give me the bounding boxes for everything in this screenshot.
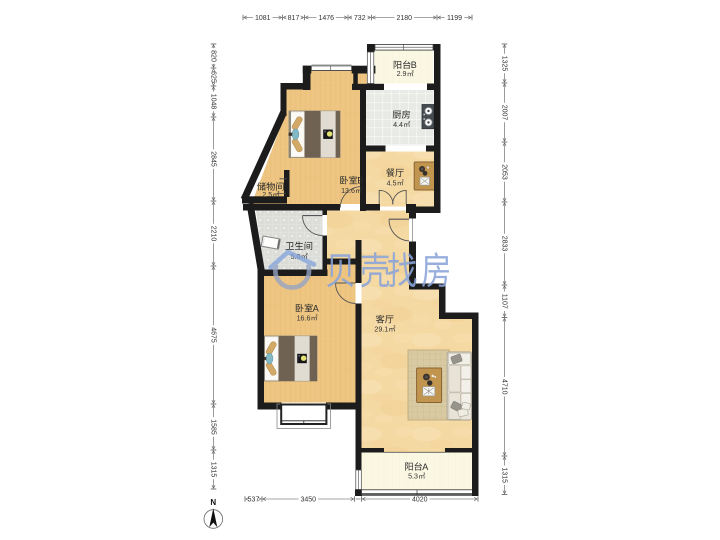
svg-text:1476: 1476 xyxy=(318,15,334,22)
svg-text:A: A xyxy=(422,462,428,472)
svg-text:2007: 2007 xyxy=(500,105,507,121)
svg-text:4675: 4675 xyxy=(209,327,216,343)
svg-text:2833: 2833 xyxy=(500,236,507,252)
svg-text:4.4: 4.4 xyxy=(393,121,403,129)
svg-text:1048: 1048 xyxy=(209,94,216,110)
svg-text:4020: 4020 xyxy=(412,496,428,503)
svg-text:3450: 3450 xyxy=(300,496,316,503)
svg-text:29.1: 29.1 xyxy=(374,326,388,334)
svg-text:1315: 1315 xyxy=(209,462,216,478)
svg-text:1325: 1325 xyxy=(500,56,507,72)
svg-text:1585: 1585 xyxy=(209,419,216,435)
svg-text:N: N xyxy=(210,498,216,507)
svg-text:B: B xyxy=(357,176,363,186)
svg-text:B: B xyxy=(411,60,417,70)
svg-text:625: 625 xyxy=(209,71,216,83)
svg-text:2.5: 2.5 xyxy=(262,191,272,199)
svg-text:2053: 2053 xyxy=(500,164,507,180)
svg-text:4710: 4710 xyxy=(500,379,507,395)
svg-text:1107: 1107 xyxy=(500,294,507,309)
svg-text:2210: 2210 xyxy=(209,226,216,242)
svg-text:2.9: 2.9 xyxy=(397,70,407,78)
svg-text:13.6: 13.6 xyxy=(341,187,355,195)
svg-text:16.6: 16.6 xyxy=(297,314,311,322)
svg-text:820: 820 xyxy=(209,50,216,62)
svg-text:2845: 2845 xyxy=(209,151,216,167)
svg-text:1081: 1081 xyxy=(255,15,271,22)
svg-text:5.3: 5.3 xyxy=(408,473,418,481)
svg-text:4.5: 4.5 xyxy=(387,179,397,187)
svg-text:1315: 1315 xyxy=(500,467,507,483)
svg-text:537: 537 xyxy=(248,496,260,503)
svg-text:1199: 1199 xyxy=(447,15,462,22)
svg-text:817: 817 xyxy=(288,15,300,22)
svg-text:2180: 2180 xyxy=(396,15,412,22)
svg-text:A: A xyxy=(313,304,319,314)
svg-text:732: 732 xyxy=(354,15,366,22)
